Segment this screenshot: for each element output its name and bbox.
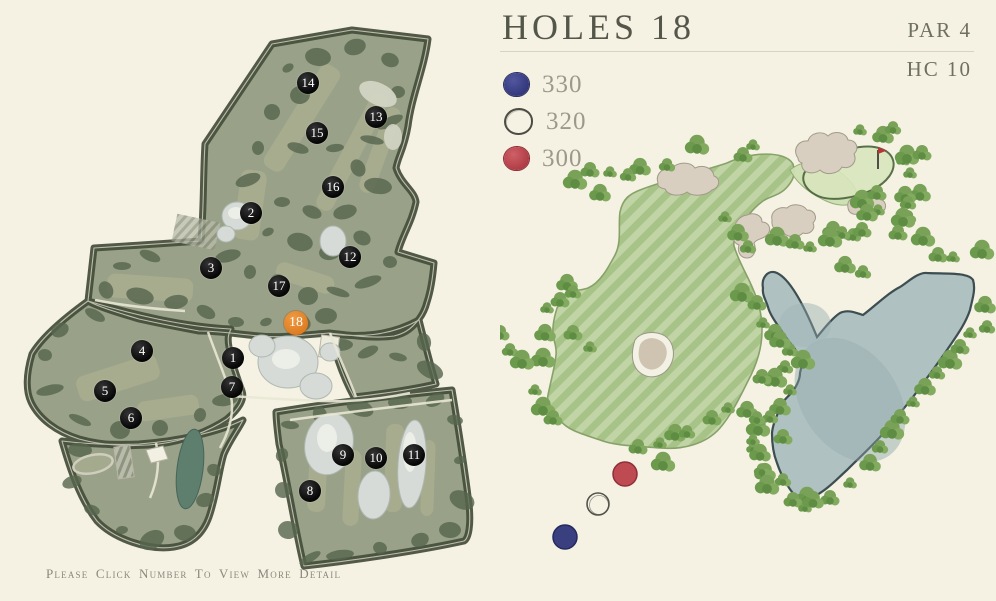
hole-marker-7[interactable]: 7 [221,376,243,398]
course-overview-map [0,0,496,601]
hole-marker-5[interactable]: 5 [94,380,116,402]
hole-marker-3[interactable]: 3 [200,257,222,279]
hole-marker-4[interactable]: 4 [131,340,153,362]
handicap-label: HC 10 [907,57,972,82]
fairway-bunker [632,333,673,377]
hole-marker-9[interactable]: 9 [332,444,354,466]
hole-marker-8[interactable]: 8 [299,480,321,502]
blue-tee-icon [504,73,529,96]
golf-course-page: { "header": { "title": "HOLES 18", "par_… [0,0,996,601]
hole-detail-panel: HOLES 18 PAR 4 HC 10 330 320 300 [500,0,996,601]
hole-marker-17[interactable]: 17 [268,275,290,297]
header-divider [500,51,974,52]
red-tee-distance: 300 [542,145,583,173]
hole-marker-14[interactable]: 14 [297,72,319,94]
blue-tee-distance: 330 [542,71,583,99]
hole-marker-15[interactable]: 15 [306,122,328,144]
red-tee-icon [504,147,529,170]
white-tee-icon [504,108,533,135]
par-label: PAR 4 [907,18,972,43]
hole-marker-1[interactable]: 1 [222,347,244,369]
course-overview-panel: 123456789101112131415161718 Please Click… [0,0,496,601]
hole-marker-16[interactable]: 16 [322,176,344,198]
white-tee-distance: 320 [546,108,587,136]
hole-marker-10[interactable]: 10 [365,447,387,469]
legend-row-blue: 330 [504,66,587,103]
blue-tee-dot [553,525,577,549]
hole-marker-13[interactable]: 13 [365,106,387,128]
tee-legend: 330 320 300 [504,66,587,177]
hole-marker-2[interactable]: 2 [240,202,262,224]
legend-row-white: 320 [504,103,587,140]
hole-marker-12[interactable]: 12 [339,246,361,268]
red-tee-dot [613,462,637,486]
legend-row-red: 300 [504,140,587,177]
hole-marker-6[interactable]: 6 [120,407,142,429]
page-title: HOLES 18 [502,6,695,48]
footer-instruction: Please Click Number To View More Detail [46,566,341,582]
hole-marker-18[interactable]: 18 [284,311,308,335]
tee-positions [553,462,637,549]
hole-marker-11[interactable]: 11 [403,444,425,466]
